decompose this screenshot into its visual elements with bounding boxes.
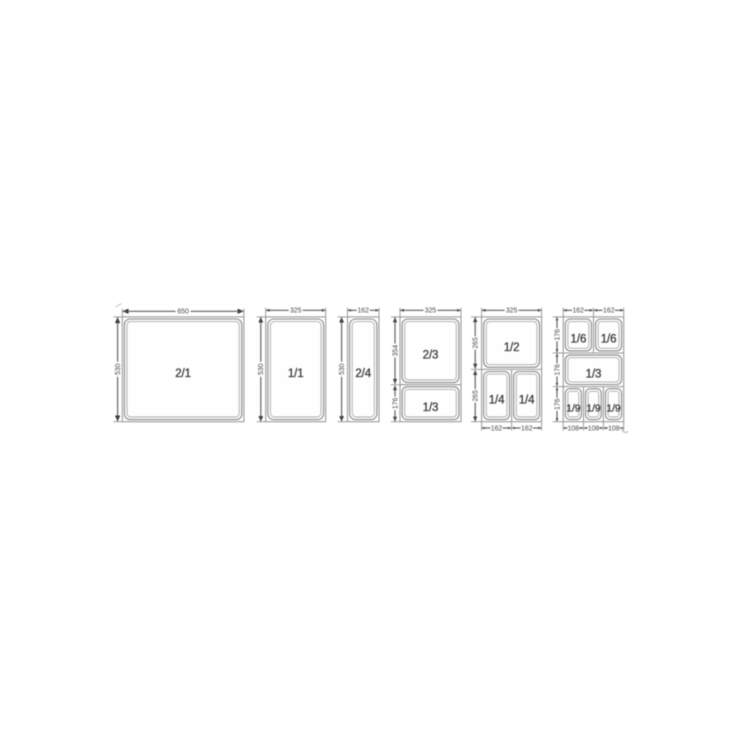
svg-text:1/6: 1/6 bbox=[571, 334, 587, 346]
svg-text:1/2: 1/2 bbox=[504, 342, 520, 354]
svg-text:162: 162 bbox=[491, 425, 503, 432]
svg-text:265: 265 bbox=[473, 390, 480, 402]
svg-text:530: 530 bbox=[258, 363, 265, 375]
svg-text:1/6: 1/6 bbox=[601, 334, 617, 346]
svg-text:162: 162 bbox=[572, 308, 584, 315]
svg-text:176: 176 bbox=[392, 397, 399, 409]
svg-text:2/3: 2/3 bbox=[423, 350, 439, 362]
svg-text:265: 265 bbox=[473, 337, 480, 349]
svg-text:1/3: 1/3 bbox=[586, 369, 602, 381]
svg-text:162: 162 bbox=[521, 425, 533, 432]
svg-text:108: 108 bbox=[567, 425, 579, 432]
svg-text:162: 162 bbox=[357, 308, 369, 315]
svg-text:325: 325 bbox=[290, 308, 302, 315]
svg-text:162: 162 bbox=[603, 308, 615, 315]
svg-text:1/3: 1/3 bbox=[423, 402, 439, 414]
svg-text:1/9: 1/9 bbox=[606, 403, 621, 415]
svg-text:530: 530 bbox=[115, 363, 122, 375]
svg-text:1/9: 1/9 bbox=[566, 403, 581, 415]
svg-text:108: 108 bbox=[588, 425, 600, 432]
svg-text:176: 176 bbox=[554, 364, 561, 376]
svg-text:176: 176 bbox=[554, 398, 561, 410]
svg-text:176: 176 bbox=[554, 329, 561, 341]
svg-text:530: 530 bbox=[339, 363, 346, 375]
svg-text:325: 325 bbox=[506, 308, 518, 315]
svg-text:108: 108 bbox=[608, 425, 620, 432]
svg-text:2/4: 2/4 bbox=[355, 368, 371, 380]
svg-text:2/1: 2/1 bbox=[175, 368, 191, 380]
svg-text:1/4: 1/4 bbox=[489, 394, 505, 406]
svg-text:1/1: 1/1 bbox=[288, 368, 304, 380]
svg-text:1/9: 1/9 bbox=[586, 403, 601, 415]
svg-text:325: 325 bbox=[425, 308, 437, 315]
svg-text:650: 650 bbox=[177, 309, 189, 316]
svg-text:1/4: 1/4 bbox=[519, 394, 535, 406]
svg-text:354: 354 bbox=[392, 345, 399, 357]
